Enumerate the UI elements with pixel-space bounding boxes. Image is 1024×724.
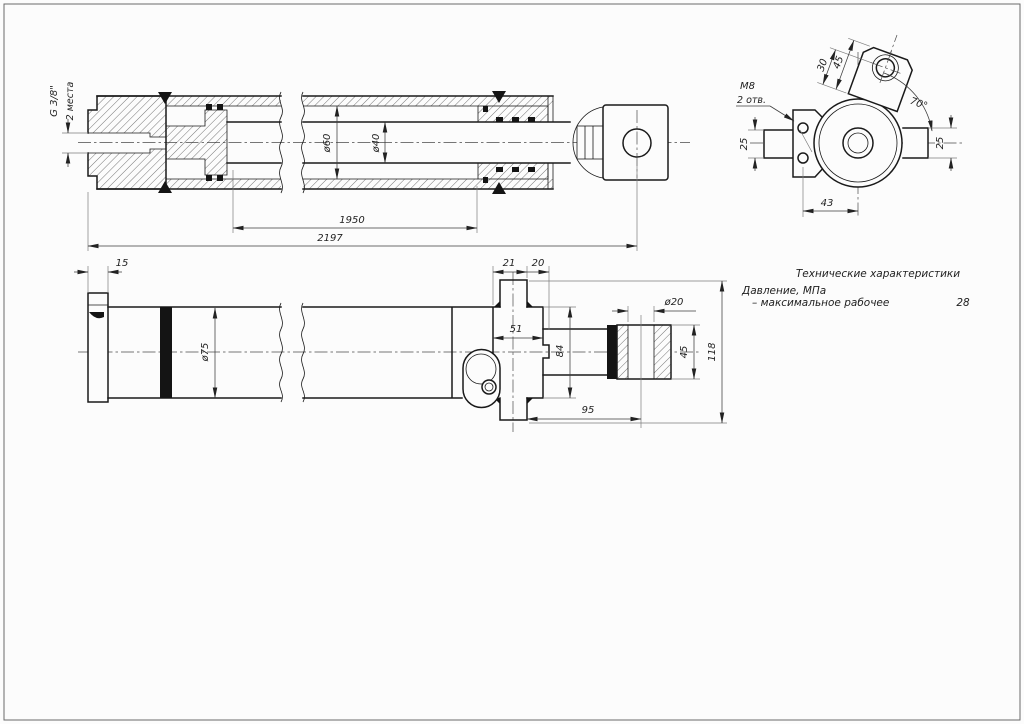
gland <box>478 106 548 183</box>
dim-port-thread: G 3/8" <box>49 85 60 117</box>
dim-outer-dia: ø75 <box>200 343 211 363</box>
dim-bore-dia: ø60 <box>322 134 333 154</box>
dim-port-places: 2 места <box>65 81 76 120</box>
dim-flat-left: 25 <box>739 138 750 151</box>
dim-holes-thread: M8 <box>740 81 755 92</box>
tech-specs: Технические характеристики Давление, МПа… <box>741 268 970 309</box>
side-rod-eye <box>543 315 671 428</box>
dim-head-width: 51 <box>510 324 523 335</box>
dim-stroke-length: 1950 <box>339 215 364 226</box>
dim-trunnion-21: 21 <box>503 258 516 269</box>
dim-eye-offset: 95 <box>582 405 595 416</box>
dim-rod-dia: ø40 <box>371 134 382 154</box>
trunnion-pins <box>494 280 533 420</box>
port-boss: 45 30 <box>812 29 916 112</box>
tech-specs-subparam: – максимальное рабочее <box>752 297 889 309</box>
tech-specs-value: 28 <box>956 297 970 309</box>
dim-holes-offset: 43 <box>821 198 834 209</box>
section-view: G 3/8" 2 места ø60 ø40 1950 2197 <box>49 81 690 251</box>
dim-holes-count: 2 отв. <box>737 95 766 106</box>
dim-flat-right: 25 <box>935 137 946 150</box>
bolt-hole-top <box>798 123 808 133</box>
bolt-hole-bottom <box>798 153 808 163</box>
dim-trunnion-20: 20 <box>532 258 545 269</box>
rod-eye <box>573 105 668 180</box>
end-view: 45 30 70° M8 2 отв. 25 25 43 <box>736 29 962 218</box>
dim-eye-hole-dia: ø20 <box>664 297 684 308</box>
dim-total-length: 2197 <box>317 233 343 244</box>
tech-specs-title: Технические характеристики <box>796 268 960 280</box>
cylinder-end-outline <box>814 99 902 187</box>
hydraulic-cylinder-drawing: G 3/8" 2 места ø60 ø40 1950 2197 <box>0 0 1024 724</box>
tech-specs-param: Давление, МПа <box>741 285 826 297</box>
side-view: 15 21 20 ø75 51 84 ø20 45 95 118 <box>74 258 727 432</box>
side-port-boss <box>463 350 500 408</box>
dim-boss-angle: 70° <box>908 96 928 112</box>
weld-ring <box>160 307 172 398</box>
dim-cap-width: 15 <box>116 258 129 269</box>
cap-end <box>88 293 108 402</box>
dim-head-height: 84 <box>555 345 566 358</box>
piston <box>166 104 227 181</box>
dim-eye-height: 45 <box>679 346 690 359</box>
drawing-sheet: G 3/8" 2 места ø60 ø40 1950 2197 <box>0 0 1024 724</box>
dim-trunnion-span: 118 <box>707 342 718 361</box>
